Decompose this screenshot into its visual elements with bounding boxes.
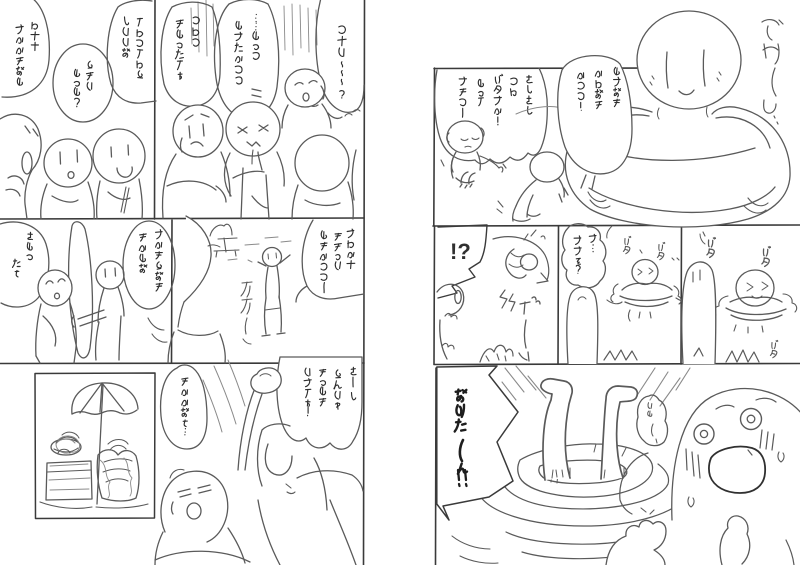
svg-text:!?: !?: [450, 239, 471, 264]
